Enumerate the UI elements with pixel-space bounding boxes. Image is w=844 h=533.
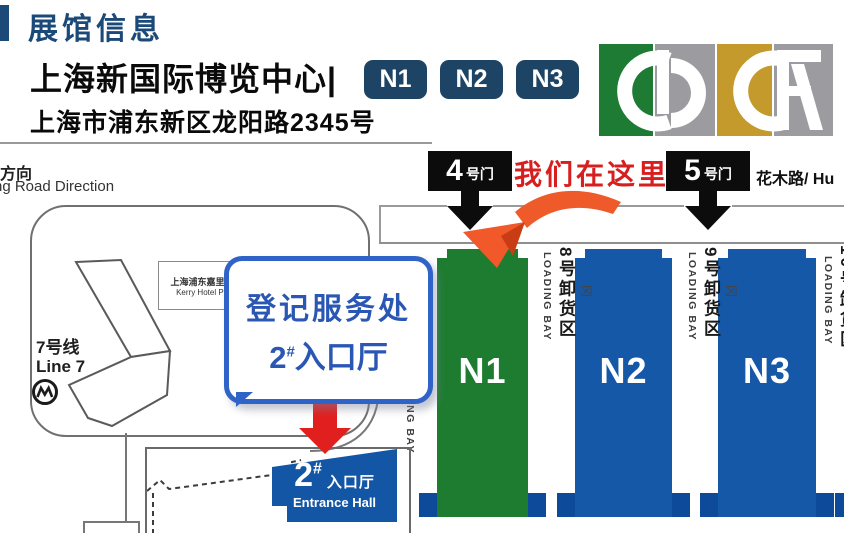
entrance-sign-en: Entrance Hall <box>293 495 376 510</box>
hall-n2-label: N2 <box>599 350 647 392</box>
metro-line7-cn: 7号线 <box>36 339 85 358</box>
registration-label: 登记服务处 <box>246 284 411 328</box>
hall-n2-south-tab-right <box>672 493 690 517</box>
here-pointer-arrow-icon <box>455 182 625 277</box>
entrance-sign-cn: 入口厅 <box>327 475 375 490</box>
loading-bay-en-label: LOADING BAY <box>686 252 698 341</box>
dock-door-glyph: 冈 <box>726 283 738 300</box>
loading-bay-en-label: LOADING BAY <box>822 256 834 345</box>
exhibition-info-page: 展馆信息 上海新国际博览中心| N1 N2 N3 上海市浦东新区龙阳路2345号 <box>0 0 844 533</box>
hotel-building-outline-upper <box>76 260 170 357</box>
gate-5-sign: 5 号门 <box>666 151 750 191</box>
metro-line7-label: 7号线 Line 7 <box>36 339 85 376</box>
loading-bay-9-cn-label: 9号卸货区 <box>698 247 723 339</box>
hall-n3-south-tab-left <box>700 493 718 517</box>
hall-n1-south-block <box>437 488 528 517</box>
gate-5-number: 5 <box>684 154 701 188</box>
dock-door-glyph: 冈 <box>581 283 593 300</box>
metro-line7-en: Line 7 <box>36 358 85 377</box>
hall-n2-south-block <box>575 488 672 517</box>
bubble-tail <box>236 392 253 407</box>
hall-n3-south-block <box>718 488 816 517</box>
loading-bay-10-cn-label: 10号卸货区 <box>834 245 844 350</box>
hall-n1-south-tab-right <box>528 493 546 517</box>
metro-logo-m-glyph <box>38 388 53 397</box>
hall-n2-south-tab-left <box>557 493 575 517</box>
gate-4-suffix: 号门 <box>466 164 494 184</box>
hall-n3-label: N3 <box>743 350 791 392</box>
gate-5-arrow-icon <box>685 206 731 230</box>
hall-n1: N1 <box>437 249 528 492</box>
loading-bay-10: 冈 10号卸货区 LOADING BAY <box>822 245 844 350</box>
gate-5-arrow-stem <box>699 190 717 207</box>
registration-callout-bubble: 登记服务处 2#入口厅 <box>224 256 433 404</box>
small-building-outline <box>84 522 139 533</box>
loading-bay-9: 冈 9号卸货区 LOADING BAY <box>686 245 740 341</box>
hall-n3-south-tab-right <box>816 493 834 517</box>
hall-n1-south-tab-left <box>419 493 437 517</box>
next-hall-south-tab-edge <box>835 493 844 517</box>
red-down-arrow-icon <box>299 428 351 454</box>
gate-5-suffix: 号门 <box>704 164 732 184</box>
hall-n1-label: N1 <box>458 350 506 392</box>
entrance-hall-label: 2#入口厅 <box>269 332 388 377</box>
